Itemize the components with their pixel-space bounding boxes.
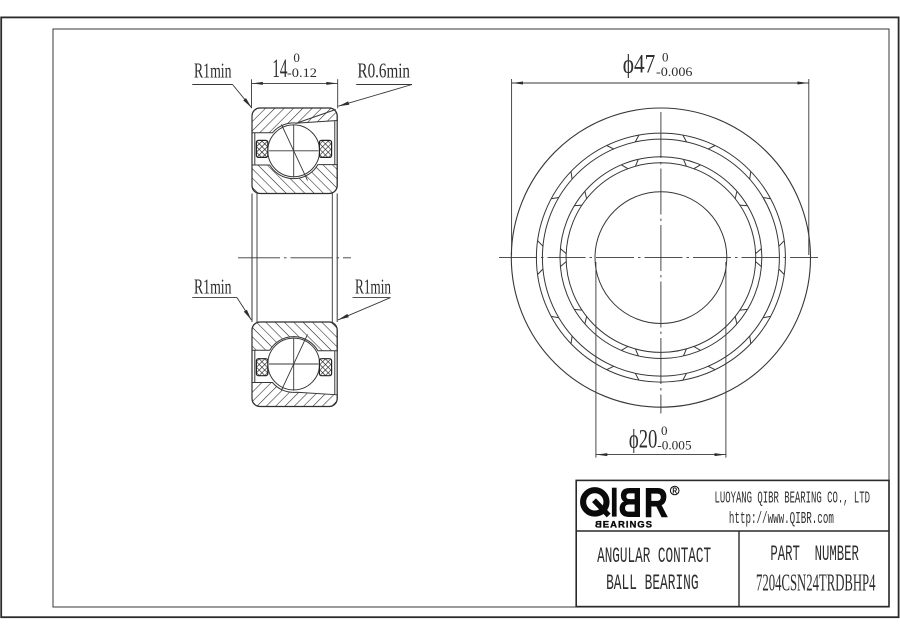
svg-text:R1min: R1min [194, 275, 232, 299]
svg-text:-0.006: -0.006 [656, 64, 693, 79]
svg-text:R1min: R1min [355, 275, 391, 299]
svg-text:PART NUMBER: PART NUMBER [770, 542, 859, 567]
svg-text:BALL BEARING: BALL BEARING [606, 571, 699, 596]
svg-text:R1min: R1min [194, 59, 232, 83]
svg-text:0: 0 [662, 49, 669, 64]
svg-text:ϕ47: ϕ47 [623, 49, 656, 78]
svg-text:-0.005: -0.005 [657, 438, 691, 453]
svg-text:http://www.QIBR.com: http://www.QIBR.com [729, 509, 834, 528]
svg-text:EARINGS: EARINGS [603, 519, 653, 530]
svg-text:ANGULAR CONTACT: ANGULAR CONTACT [597, 544, 711, 569]
svg-text:R: R [672, 486, 677, 495]
svg-text:ϕ20: ϕ20 [629, 425, 658, 454]
svg-text:-0.12: -0.12 [287, 65, 317, 80]
svg-text:7204CSN24TRDBHP4: 7204CSN24TRDBHP4 [756, 570, 876, 597]
svg-text:LUOYANG QIBR BEARING CO., LTD: LUOYANG QIBR BEARING CO., LTD [715, 488, 871, 507]
svg-text:0: 0 [293, 50, 300, 65]
svg-text:B: B [595, 519, 602, 530]
svg-text:0: 0 [661, 423, 668, 438]
svg-text:R: R [644, 479, 668, 525]
svg-text:B: B [619, 479, 642, 525]
svg-text:R0.6min: R0.6min [358, 59, 411, 83]
svg-text:14: 14 [272, 54, 287, 83]
